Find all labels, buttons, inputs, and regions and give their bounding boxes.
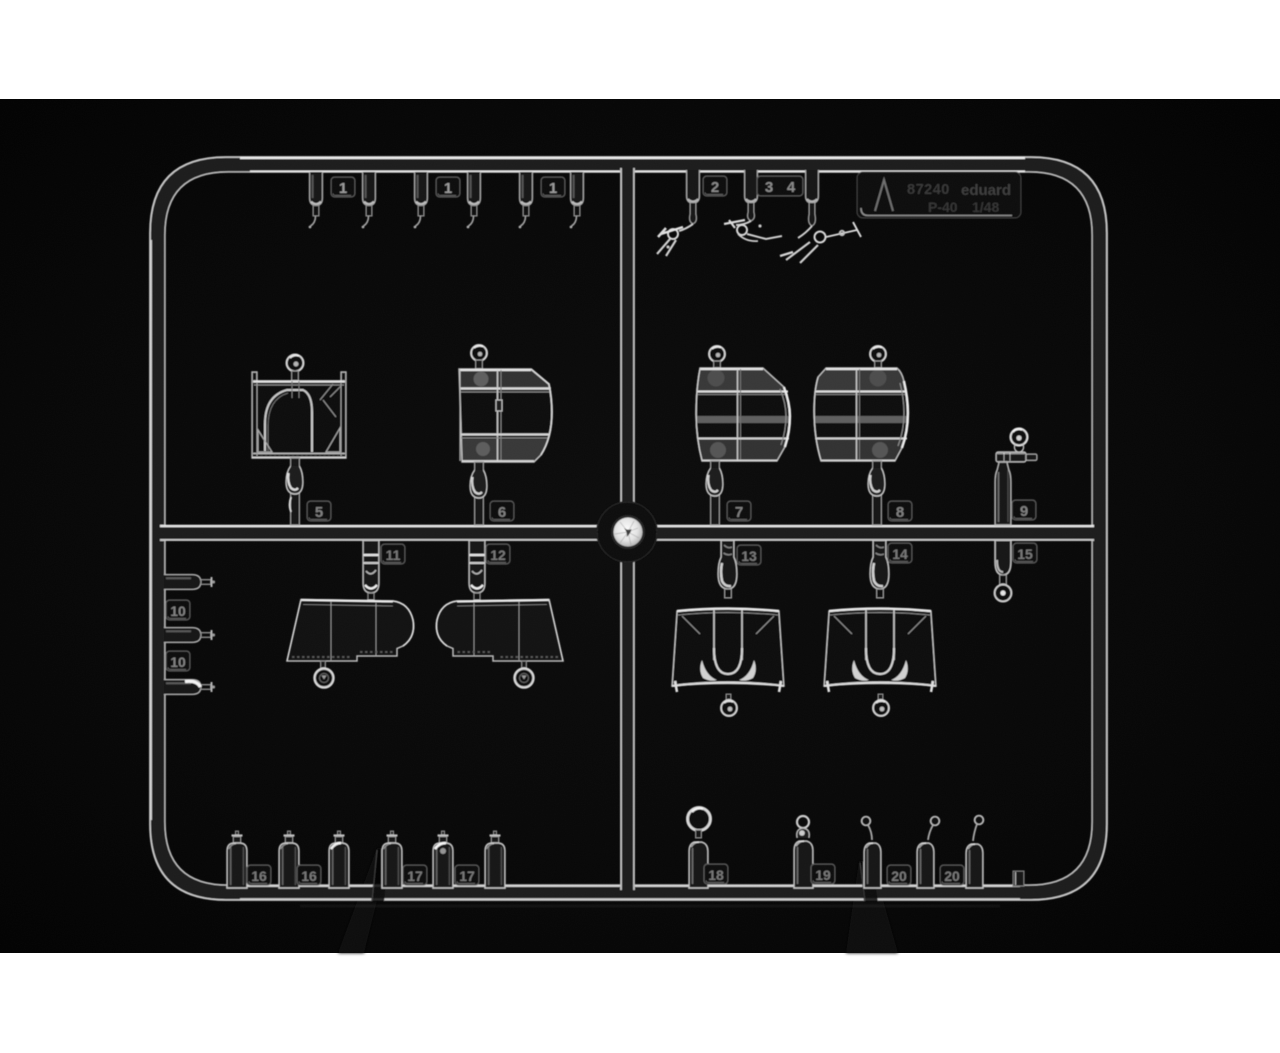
svg-text:4: 4 (787, 179, 796, 196)
svg-text:7: 7 (735, 504, 743, 521)
svg-text:19: 19 (815, 867, 831, 883)
svg-text:87240: 87240 (907, 182, 950, 198)
svg-text:14: 14 (892, 546, 908, 562)
svg-text:17: 17 (407, 868, 423, 884)
svg-text:16: 16 (301, 868, 317, 884)
svg-text:20: 20 (944, 868, 960, 884)
svg-text:10: 10 (170, 603, 186, 619)
svg-text:8: 8 (896, 504, 904, 521)
svg-text:15: 15 (1017, 546, 1033, 562)
svg-text:9: 9 (1020, 503, 1028, 520)
svg-text:6: 6 (498, 504, 506, 521)
svg-text:5: 5 (315, 504, 323, 521)
svg-text:3: 3 (765, 179, 773, 196)
svg-text:1: 1 (549, 180, 557, 197)
svg-text:12: 12 (490, 547, 506, 563)
svg-text:1: 1 (444, 180, 452, 197)
svg-text:16: 16 (251, 868, 267, 884)
svg-text:1: 1 (339, 180, 347, 197)
svg-text:1/48: 1/48 (972, 199, 999, 215)
svg-text:10: 10 (170, 654, 186, 670)
svg-text:17: 17 (459, 868, 475, 884)
svg-text:18: 18 (708, 867, 724, 883)
svg-text:eduard: eduard (961, 182, 1011, 199)
svg-text:13: 13 (741, 548, 757, 564)
svg-text:11: 11 (386, 547, 401, 563)
svg-text:2: 2 (711, 179, 719, 196)
svg-text:20: 20 (891, 868, 907, 884)
svg-text:P-40: P-40 (928, 199, 958, 215)
